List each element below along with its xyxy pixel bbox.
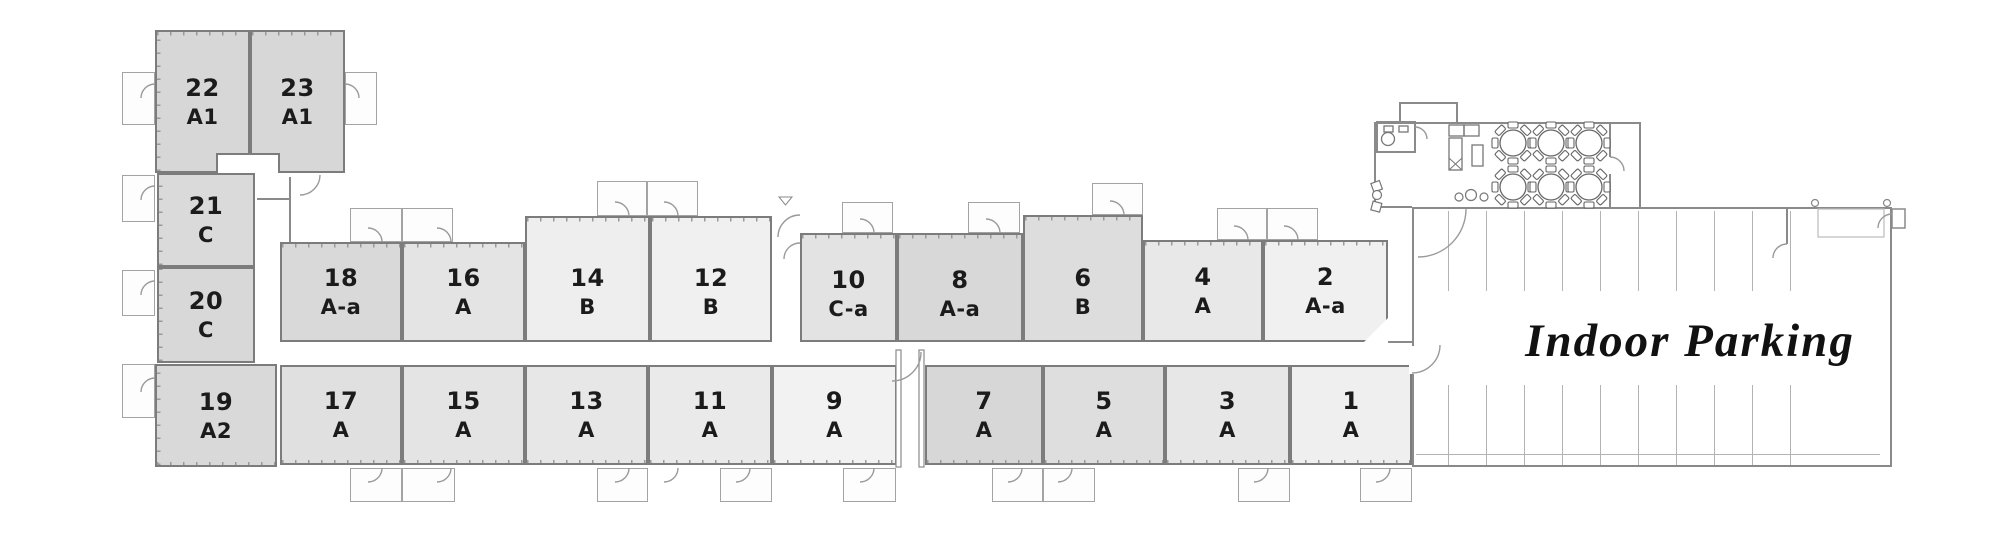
unit-type: B [579, 297, 596, 318]
unit-12[interactable]: 12 B [650, 216, 772, 342]
unit-15[interactable]: 15 A [402, 365, 525, 465]
unit-number: 19 [199, 390, 233, 414]
unit-number: 11 [693, 389, 727, 413]
balcony [402, 468, 455, 502]
balcony [1217, 208, 1267, 240]
unit-number: 16 [446, 266, 480, 290]
balcony [1092, 183, 1143, 215]
unit-type: A1 [187, 107, 219, 128]
unit-type: A1 [282, 107, 314, 128]
unit-11[interactable]: 11 A [648, 365, 772, 465]
unit-type: A [1195, 296, 1212, 317]
unit-21[interactable]: 21 C [157, 173, 255, 267]
entry-notch [216, 153, 280, 173]
unit-type: B [1075, 297, 1092, 318]
unit-number: 13 [569, 389, 603, 413]
unit-number: 10 [831, 268, 865, 292]
unit-8[interactable]: 8 A-a [897, 233, 1023, 342]
unit-type: A [702, 420, 719, 441]
unit-6[interactable]: 6 B [1023, 215, 1143, 342]
unit-type: C [198, 320, 214, 341]
unit-17[interactable]: 17 A [280, 365, 402, 465]
unit-type: C-a [828, 299, 868, 320]
unit-type: A-a [1305, 296, 1346, 317]
bathroom [1377, 122, 1427, 152]
unit-type: B [703, 297, 720, 318]
balcony [345, 72, 377, 125]
unit-9[interactable]: 9 A [772, 365, 897, 465]
unit-23[interactable]: 23 A1 [250, 30, 345, 173]
unit-number: 12 [694, 266, 728, 290]
unit-type: A [578, 420, 595, 441]
unit-3[interactable]: 3 A [1165, 365, 1290, 465]
unit-2[interactable]: 2 A-a [1263, 240, 1388, 342]
balcony [402, 208, 453, 242]
unit-number: 17 [324, 389, 358, 413]
dining-table-icon [1492, 122, 1534, 164]
unit-16[interactable]: 16 A [402, 242, 525, 342]
unit-7[interactable]: 7 A [925, 365, 1043, 465]
unit-number: 22 [185, 76, 219, 100]
unit-4[interactable]: 4 A [1143, 240, 1263, 342]
mid-passage [778, 197, 800, 259]
dining-tables [1492, 122, 1610, 208]
unit-18[interactable]: 18 A-a [280, 242, 402, 342]
dining-table-icon [1492, 166, 1534, 208]
unit-type: A-a [940, 299, 981, 320]
balcony [1238, 468, 1290, 502]
balcony [1267, 208, 1318, 240]
unit-19[interactable]: 19 A2 [155, 364, 277, 467]
parking-label: Indoor Parking [1490, 296, 1890, 386]
unit-13[interactable]: 13 A [525, 365, 648, 465]
unit-type: C [198, 225, 214, 246]
unit-number: 5 [1095, 389, 1112, 413]
unit-number: 14 [570, 266, 604, 290]
unit-type: A [976, 420, 993, 441]
amenity-room [1371, 103, 1640, 212]
unit-number: 15 [446, 389, 480, 413]
dining-table-icon [1568, 122, 1610, 164]
unit-type: A2 [200, 421, 232, 442]
unit-number: 18 [324, 266, 358, 290]
balcony [1360, 468, 1412, 502]
balcony [720, 468, 772, 502]
amenity-room-walls [1375, 103, 1640, 207]
parking-lane-line [1416, 454, 1880, 455]
unit-5[interactable]: 5 A [1043, 365, 1165, 465]
balcony [122, 270, 155, 316]
unit-type: A [455, 420, 472, 441]
unit-type: A [455, 297, 472, 318]
column-marker [1812, 200, 1819, 207]
unit-type: A [826, 420, 843, 441]
unit-number: 20 [189, 289, 223, 313]
unit-number: 8 [951, 268, 968, 292]
unit-type: A [1343, 420, 1360, 441]
dining-table-icon [1568, 166, 1610, 208]
balcony [350, 208, 402, 242]
balcony [647, 181, 698, 216]
balcony [843, 468, 896, 502]
parking-stalls-top [1448, 211, 1793, 291]
entry-hall-walls [257, 175, 320, 242]
unit-10[interactable]: 10 C-a [800, 233, 897, 342]
balcony [842, 202, 893, 233]
balcony [597, 181, 647, 216]
amenity-door-arc [1610, 157, 1624, 171]
floor-plan: 22 A1 23 A1 21 C 20 C 19 A2 18 A-a 16 A … [0, 0, 2000, 545]
unit-number: 3 [1219, 389, 1236, 413]
balcony [350, 468, 402, 502]
unit-number: 2 [1317, 265, 1334, 289]
unit-number: 6 [1074, 266, 1091, 290]
unit-14[interactable]: 14 B [525, 216, 650, 342]
kitchenette [1449, 125, 1483, 170]
unit-number: 9 [826, 389, 843, 413]
unit-number: 7 [975, 389, 992, 413]
unit-number: 21 [189, 194, 223, 218]
column-marker [1884, 200, 1891, 207]
balcony [122, 175, 155, 222]
unit-20[interactable]: 20 C [157, 267, 255, 363]
unit-type: A-a [321, 297, 362, 318]
parking-stalls-bottom [1448, 385, 1793, 465]
balcony [992, 468, 1043, 502]
dining-table-icon [1530, 166, 1572, 208]
unit-number: 1 [1342, 389, 1359, 413]
unit-22[interactable]: 22 A1 [155, 30, 250, 173]
unit-type: A [1096, 420, 1113, 441]
balcony [597, 468, 648, 502]
unit-number: 4 [1194, 265, 1211, 289]
unit-type: A [1219, 420, 1236, 441]
unit-type: A [333, 420, 350, 441]
dining-table-icon [1530, 122, 1572, 164]
balcony [122, 364, 155, 418]
balcony [1043, 468, 1095, 502]
balcony [968, 202, 1020, 233]
unit-number: 23 [280, 76, 314, 100]
side-door [1892, 209, 1905, 228]
unit-1[interactable]: 1 A [1290, 365, 1412, 465]
balcony [122, 72, 155, 125]
